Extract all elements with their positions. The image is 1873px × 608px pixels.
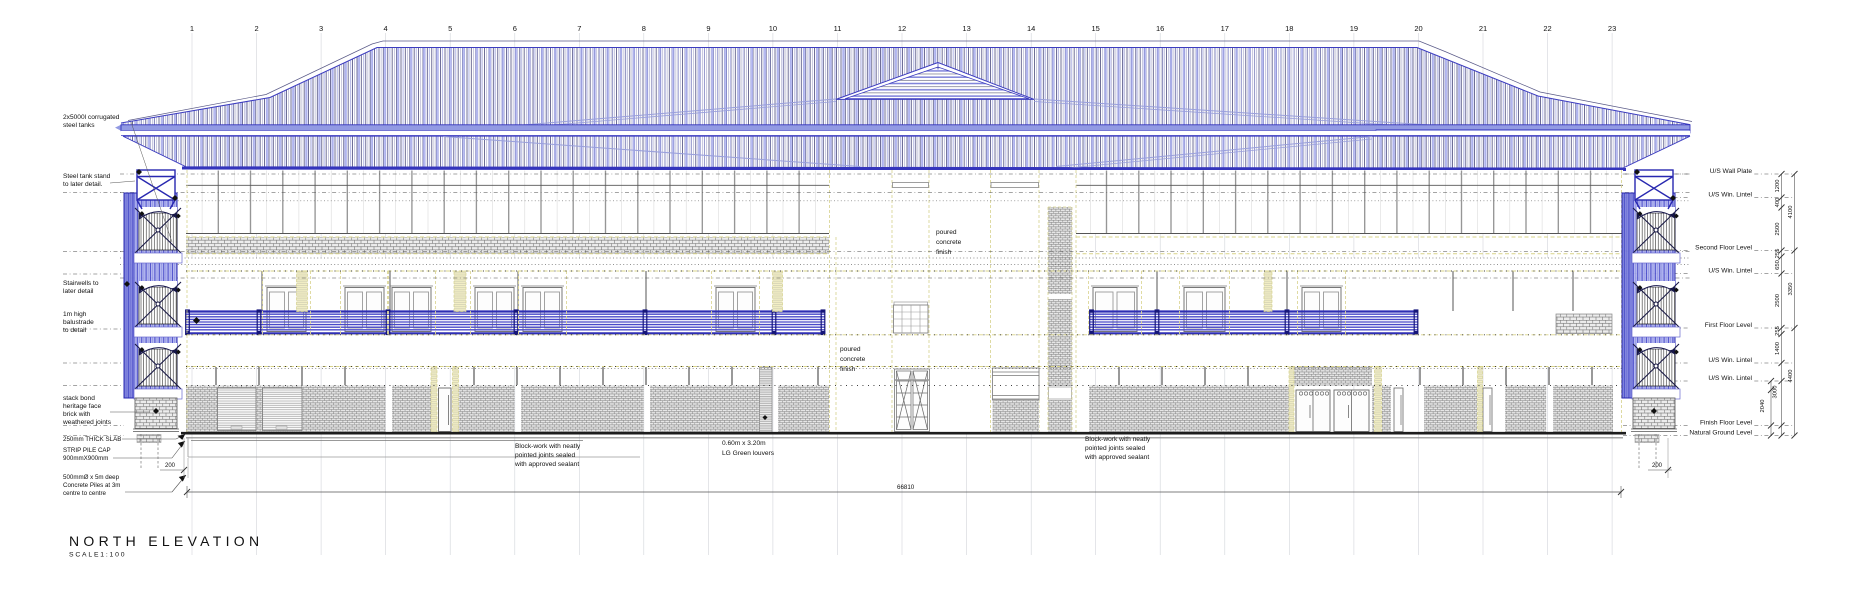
svg-text:to detail: to detail <box>63 327 87 334</box>
svg-text:Natural Ground Level: Natural Ground Level <box>1689 430 1752 437</box>
svg-text:6: 6 <box>513 24 517 33</box>
svg-text:SCALE1:100: SCALE1:100 <box>69 552 126 559</box>
svg-text:NORTH ELEVATION: NORTH ELEVATION <box>69 533 263 549</box>
svg-text:4: 4 <box>384 24 388 33</box>
svg-text:16: 16 <box>1156 24 1164 33</box>
svg-text:900mmX900mm: 900mmX900mm <box>63 455 108 462</box>
svg-text:poured: poured <box>840 346 861 353</box>
svg-text:9: 9 <box>706 24 710 33</box>
svg-text:255: 255 <box>1775 326 1781 336</box>
svg-text:LG Green louvers: LG Green louvers <box>722 450 775 457</box>
svg-text:2x5000l corrugated: 2x5000l corrugated <box>63 114 120 121</box>
svg-text:19: 19 <box>1350 24 1358 33</box>
svg-text:centre to centre: centre to centre <box>63 490 107 497</box>
svg-text:10: 10 <box>769 24 777 33</box>
svg-text:U/S Win. Lintel: U/S Win. Lintel <box>1708 375 1752 382</box>
svg-text:3350: 3350 <box>1788 283 1794 296</box>
svg-text:1400: 1400 <box>1775 342 1781 355</box>
svg-text:22: 22 <box>1543 24 1551 33</box>
svg-text:0.60m x 3.20m: 0.60m x 3.20m <box>722 440 766 447</box>
svg-text:U/S Wall Plate: U/S Wall Plate <box>1710 168 1753 175</box>
svg-text:20: 20 <box>1414 24 1422 33</box>
svg-text:balustrade: balustrade <box>63 319 94 326</box>
svg-text:200: 200 <box>1652 463 1663 469</box>
svg-text:finish: finish <box>936 249 952 256</box>
svg-text:3: 3 <box>319 24 323 33</box>
svg-text:Stairwells to: Stairwells to <box>63 280 99 287</box>
svg-text:Second Floor Level: Second Floor Level <box>1695 245 1752 252</box>
svg-text:pointed joints sealed: pointed joints sealed <box>515 452 575 459</box>
svg-text:2: 2 <box>255 24 259 33</box>
svg-text:21: 21 <box>1479 24 1487 33</box>
svg-text:weathered joints: weathered joints <box>62 419 112 426</box>
svg-text:23: 23 <box>1608 24 1616 33</box>
svg-text:to later detail.: to later detail. <box>63 181 103 188</box>
svg-text:Finish Floor Level: Finish Floor Level <box>1700 420 1753 427</box>
svg-text:400: 400 <box>1775 198 1781 208</box>
svg-text:255: 255 <box>1775 249 1781 259</box>
svg-text:heritage face: heritage face <box>63 403 101 410</box>
svg-text:First Floor Level: First Floor Level <box>1705 322 1753 329</box>
svg-text:with approved sealant: with approved sealant <box>1084 454 1149 461</box>
svg-text:poured: poured <box>936 229 957 236</box>
svg-text:650: 650 <box>1775 260 1781 270</box>
svg-text:1m high: 1m high <box>63 311 87 318</box>
svg-text:later detail: later detail <box>63 288 94 295</box>
svg-text:1200: 1200 <box>1775 180 1781 193</box>
svg-text:11: 11 <box>834 24 842 33</box>
svg-text:12: 12 <box>898 24 906 33</box>
svg-text:250mm THICK SLAB: 250mm THICK SLAB <box>63 436 121 443</box>
svg-text:steel tanks: steel tanks <box>63 122 95 129</box>
svg-text:Concrete Piles at 3m: Concrete Piles at 3m <box>63 482 120 489</box>
svg-text:15: 15 <box>1092 24 1100 33</box>
svg-text:brick with: brick with <box>63 411 91 418</box>
svg-text:pointed joints sealed: pointed joints sealed <box>1085 445 1145 452</box>
svg-text:200: 200 <box>165 463 176 469</box>
svg-text:U/S Win. Lintel: U/S Win. Lintel <box>1708 357 1752 364</box>
svg-text:66810: 66810 <box>897 484 915 491</box>
svg-text:with approved sealant: with approved sealant <box>514 461 579 468</box>
svg-text:4400: 4400 <box>1788 370 1794 383</box>
svg-text:2040: 2040 <box>1760 400 1766 413</box>
svg-text:STRIP PILE CAP: STRIP PILE CAP <box>63 447 111 454</box>
svg-text:3000: 3000 <box>1773 386 1779 399</box>
svg-text:18: 18 <box>1285 24 1293 33</box>
svg-text:2500: 2500 <box>1775 294 1781 307</box>
svg-text:finish: finish <box>840 366 856 373</box>
svg-text:stack bond: stack bond <box>63 395 95 402</box>
svg-text:concrete: concrete <box>840 356 866 363</box>
svg-text:U/S Win. Lintel: U/S Win. Lintel <box>1708 268 1752 275</box>
svg-text:7: 7 <box>577 24 581 33</box>
svg-text:U/S Win. Lintel: U/S Win. Lintel <box>1708 192 1752 199</box>
svg-text:Steel tank stand: Steel tank stand <box>63 173 111 180</box>
svg-text:concrete: concrete <box>936 239 962 246</box>
svg-text:14: 14 <box>1027 24 1035 33</box>
svg-text:Block-work with neatly: Block-work with neatly <box>515 443 581 450</box>
svg-text:500mmØ x 5m deep: 500mmØ x 5m deep <box>63 474 120 481</box>
svg-text:13: 13 <box>962 24 970 33</box>
svg-text:4100: 4100 <box>1788 206 1794 219</box>
svg-text:17: 17 <box>1221 24 1229 33</box>
svg-text:2500: 2500 <box>1775 223 1781 236</box>
svg-text:8: 8 <box>642 24 646 33</box>
svg-text:Block-work with neatly: Block-work with neatly <box>1085 436 1151 443</box>
svg-text:1: 1 <box>190 24 194 33</box>
svg-text:5: 5 <box>448 24 452 33</box>
